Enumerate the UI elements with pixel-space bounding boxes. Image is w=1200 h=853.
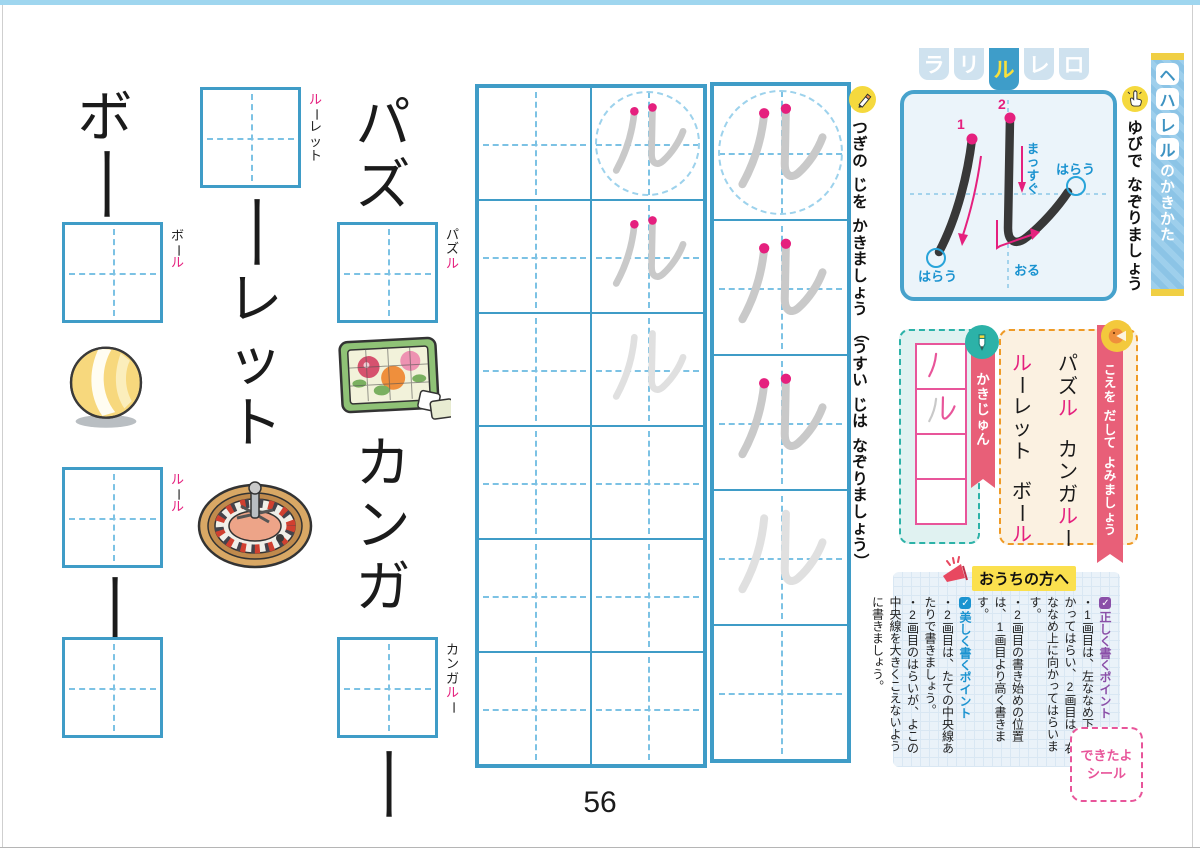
write-instruction: つぎのじをかきましょう（うすいじはなぞりましょう）: [851, 120, 869, 568]
char-ー: ー: [351, 738, 423, 831]
page-bottom-edge: [0, 847, 1200, 848]
checkbox-icon: ✓: [959, 597, 971, 609]
char-ン: ン: [1056, 460, 1080, 483]
char-ょ: ょ: [851, 521, 869, 538]
char-を: を: [1103, 390, 1117, 404]
char-ん: ん: [976, 432, 990, 447]
char-き: き: [851, 235, 869, 252]
char-し: し: [1103, 497, 1117, 511]
read-aloud-words-col-2: ルーレットボール: [1010, 352, 1034, 545]
practice-cell[interactable]: [591, 200, 704, 313]
char-ぞ: ぞ: [1126, 194, 1144, 211]
char-か: か: [1160, 180, 1176, 196]
char-ズ: ズ: [352, 154, 414, 216]
practice-cell[interactable]: [591, 87, 704, 200]
stroke-2-number: 2: [998, 96, 1006, 112]
stroke-order-cell-3: [915, 433, 967, 480]
char-ょ: ょ: [851, 285, 869, 302]
char-り: り: [1126, 211, 1144, 228]
char-ぐ: ぐ: [1026, 183, 1040, 197]
char-ー: ー: [309, 107, 322, 122]
char-ル: ル: [170, 257, 185, 272]
word-rule-label: ルール: [170, 473, 185, 515]
voice-icon: [1101, 320, 1133, 352]
char-ン: ン: [445, 658, 460, 673]
sticker-box[interactable]: できたよ シール: [1070, 727, 1143, 802]
trace-glyph-ru: [723, 500, 837, 614]
char-（: （: [853, 324, 867, 342]
point-heading: ✓美しく書くポイント: [956, 596, 974, 762]
tab-ラ[interactable]: ラ: [919, 48, 949, 80]
label-oru: おる: [1014, 260, 1040, 279]
char-ー: ー: [446, 700, 459, 715]
char-レ: レ: [308, 121, 323, 136]
word-roulette-display: ーレット: [224, 196, 286, 454]
point-item: ・2画目のはらいが、よこの中央線を大きくこえないように書きましょう。: [868, 596, 921, 762]
worksheet-page: ボー ボール ルール ー ルーレット ーレット パズ パズル: [0, 0, 1200, 853]
char-カ: カ: [1056, 438, 1080, 461]
char-ー: ー: [171, 243, 184, 258]
char-な: な: [1126, 178, 1144, 195]
page-left-edge: [2, 5, 3, 848]
char-き: き: [1160, 196, 1176, 212]
char-し: し: [851, 268, 869, 285]
char-ー: ー: [1012, 501, 1032, 525]
char-ル: ル: [170, 501, 185, 516]
char-り: り: [851, 471, 869, 488]
flower-puzzle-image: [337, 334, 451, 422]
stroke-diagram-box: 1 2 まっすぐ はらう はらう おる: [900, 90, 1117, 301]
char-ょ: ょ: [1126, 260, 1144, 277]
char-か: か: [976, 372, 990, 387]
tab-ロ[interactable]: ロ: [1059, 48, 1089, 80]
char-じ: じ: [851, 397, 869, 414]
char-う: う: [851, 301, 869, 318]
char-ル: ル: [445, 687, 460, 702]
practice-grid-two-col: [475, 84, 707, 768]
char-ル: ル: [1010, 352, 1034, 375]
finger-icon: [1122, 86, 1148, 112]
char-ガ: ガ: [1056, 483, 1080, 506]
practice-cell[interactable]: [713, 220, 848, 355]
char-ッ: ッ: [308, 135, 323, 150]
char-レ: レ: [1010, 395, 1034, 418]
read-aloud-label: こえをだしてよみましょう: [1103, 363, 1117, 537]
char-だ: だ: [1103, 410, 1117, 424]
practice-cell[interactable]: [591, 426, 704, 539]
tab-リ[interactable]: リ: [954, 48, 984, 80]
trace-glyph-ru: [723, 95, 837, 209]
trace-glyph-ru: [600, 209, 695, 304]
banner-bottom-cap: [1151, 289, 1184, 296]
char-し: し: [1126, 244, 1144, 261]
word-kangaroo-display-tail: ー: [356, 748, 418, 820]
char-を: を: [851, 194, 869, 211]
parents-note-title: おうちの方へ: [972, 566, 1076, 591]
trace-glyph-ru: [600, 322, 695, 417]
chapter-side-tab[interactable]: ヘハレル のかきかた: [1151, 53, 1184, 296]
char-ま: ま: [851, 252, 869, 269]
char-う: う: [1126, 277, 1144, 294]
stroke-1-number: 1: [957, 116, 965, 132]
char-ま: ま: [1026, 142, 1040, 156]
read-aloud-ribbon: こえをだしてよみましょう: [1097, 325, 1123, 563]
char-ル: ル: [1056, 505, 1080, 528]
banner-letter-レ: レ: [1156, 113, 1179, 135]
practice-cell[interactable]: [713, 85, 848, 220]
char-え: え: [1103, 377, 1117, 391]
trace-glyph-ru: [600, 96, 695, 191]
stroke-order-cell-2: [915, 388, 967, 435]
char-カ: カ: [352, 432, 414, 494]
char-パ: パ: [445, 228, 460, 243]
char-じ: じ: [976, 402, 990, 417]
tab-ル[interactable]: ル: [989, 48, 1019, 90]
word-rule-write-box-2[interactable]: [62, 637, 163, 738]
char-び: び: [1126, 137, 1144, 154]
char-た: た: [1160, 228, 1176, 244]
finger-instruction: ゆびでなぞりましょう: [1126, 120, 1144, 293]
char-ま: ま: [851, 488, 869, 505]
stroke-order-cell-1: [915, 343, 967, 390]
practice-cell[interactable]: [591, 313, 704, 426]
char-）: ）: [853, 552, 867, 570]
trace-glyph-ru: [723, 230, 837, 344]
char-ル: ル: [445, 257, 460, 272]
page-number: 56: [560, 786, 640, 820]
point-item: ・2画目は、たての中央線あたりで書きましょう。: [921, 596, 956, 762]
reading-word: ボール: [1010, 480, 1034, 545]
char-す: す: [851, 356, 869, 373]
megaphone-icon: [939, 556, 971, 586]
char-で: で: [1126, 153, 1144, 170]
char-パ: パ: [352, 92, 414, 154]
checkbox-icon: ✓: [1099, 597, 1111, 609]
char-カ: カ: [445, 643, 460, 658]
word-puzzle-label: パズル: [445, 228, 460, 272]
practice-cell[interactable]: [478, 539, 591, 652]
practice-cell[interactable]: [591, 652, 704, 765]
char-き: き: [976, 387, 990, 402]
char-ル: ル: [170, 473, 185, 488]
char-ー: ー: [1058, 526, 1078, 550]
banner-suffix: のかきかた: [1160, 164, 1176, 244]
word-roulette-write-box[interactable]: [200, 87, 301, 188]
pencil-icon: [849, 86, 876, 113]
char-ボ: ボ: [170, 229, 185, 244]
word-kangaroo-write-box[interactable]: [337, 637, 438, 738]
char-ッ: ッ: [1010, 417, 1034, 440]
char-ボ: ボ: [1010, 480, 1034, 503]
char-ン: ン: [352, 494, 414, 556]
banner-top-cap: [1151, 53, 1184, 60]
char-か: か: [851, 219, 869, 236]
char-ズ: ズ: [1056, 375, 1080, 398]
tab-レ[interactable]: レ: [1024, 48, 1054, 80]
char-よ: よ: [1103, 456, 1117, 470]
char-ー: ー: [1012, 373, 1032, 397]
trace-glyph-ru: [723, 365, 837, 479]
char-ー: ー: [69, 138, 141, 231]
banner-letter-ハ: ハ: [1156, 88, 1179, 110]
char-て: て: [1103, 437, 1117, 451]
label-massugu: まっすぐ: [1026, 142, 1040, 196]
char-っ: っ: [1026, 156, 1040, 170]
banner-letter-ル: ル: [1156, 138, 1179, 160]
page-right-edge: [1192, 5, 1193, 848]
sticker-line2: シール: [1087, 765, 1126, 783]
word-ball-label: ボール: [170, 229, 185, 271]
char-ゅ: ゅ: [976, 417, 990, 432]
practice-cell[interactable]: [478, 200, 591, 313]
banner-letter-ヘ: ヘ: [1156, 63, 1179, 85]
char-パ: パ: [1056, 352, 1080, 375]
char-ト: ト: [308, 150, 323, 165]
char-ズ: ズ: [445, 243, 460, 258]
reading-word: パズル: [1056, 352, 1080, 420]
katakana-row-tabs: ラリルレロ: [919, 48, 1089, 90]
char-ぎ: ぎ: [851, 137, 869, 154]
char-ま: ま: [1126, 227, 1144, 244]
stroke-order-ribbon: かきじゅん: [971, 338, 995, 488]
word-ball-display: ボー: [74, 86, 136, 220]
practice-cell[interactable]: [713, 490, 848, 625]
word-puzzle-display: パズ: [352, 92, 414, 216]
char-の: の: [851, 153, 869, 170]
char-ま: ま: [1103, 483, 1117, 497]
char-ル: ル: [1056, 397, 1080, 420]
reading-word: ルーレット: [1010, 352, 1034, 462]
char-ガ: ガ: [445, 672, 460, 687]
word-rule-display: ー: [82, 574, 144, 646]
char-か: か: [1160, 212, 1176, 228]
word-rule-write-box-1[interactable]: [62, 467, 163, 568]
word-puzzle-write-box[interactable]: [337, 222, 438, 323]
practice-cell[interactable]: [478, 313, 591, 426]
char-ょ: ょ: [1103, 510, 1117, 524]
char-つ: つ: [851, 120, 869, 137]
stroke-order-strip: [915, 345, 967, 525]
word-kangaroo-label: カンガルー: [445, 643, 460, 714]
char-し: し: [851, 504, 869, 521]
roulette-wheel-image: [194, 476, 316, 572]
char-は: は: [851, 414, 869, 431]
word-ball-write-box[interactable]: [62, 222, 163, 323]
practice-cell[interactable]: [478, 426, 591, 539]
stroke-order-pencil-icon: [965, 325, 999, 359]
label-harau-2: はらう: [1056, 159, 1095, 178]
char-ト: ト: [1010, 440, 1034, 463]
char-し: し: [1103, 423, 1117, 437]
char-じ: じ: [851, 178, 869, 195]
reading-word: カンガルー: [1056, 438, 1080, 548]
stroke-order-label: かきじゅん: [976, 372, 990, 447]
practice-cell[interactable]: [591, 539, 704, 652]
stroke-order-cell-4: [915, 478, 967, 525]
practice-cell[interactable]: [478, 87, 591, 200]
char-ー: ー: [171, 487, 184, 502]
char-ト: ト: [224, 392, 286, 454]
read-aloud-words-col-1: パズルカンガルー: [1056, 352, 1080, 548]
char-ガ: ガ: [352, 556, 414, 618]
char-ル: ル: [1010, 523, 1034, 546]
char-ル: ル: [308, 93, 323, 108]
char-の: の: [1160, 164, 1176, 180]
sticker-line1: できたよ: [1080, 747, 1132, 765]
practice-grid-one-col: [710, 82, 851, 763]
char-う: う: [1103, 524, 1117, 538]
char-ッ: ッ: [224, 330, 286, 392]
char-な: な: [851, 438, 869, 455]
char-ゆ: ゆ: [1126, 120, 1144, 137]
char-す: す: [1026, 169, 1040, 183]
char-ー: ー: [219, 186, 291, 279]
char-こ: こ: [1103, 363, 1117, 377]
word-roulette-label: ルーレット: [308, 93, 323, 164]
char-ぞ: ぞ: [851, 455, 869, 472]
practice-cell[interactable]: [713, 355, 848, 490]
char-い: い: [851, 373, 869, 390]
practice-cell[interactable]: [713, 625, 848, 760]
char-み: み: [1103, 470, 1117, 484]
beach-ball-image: [60, 340, 152, 430]
page-top-edge: [0, 0, 1200, 5]
practice-cell[interactable]: [478, 652, 591, 765]
word-kangaroo-display: カンガ: [352, 432, 414, 618]
label-harau-1: はらう: [918, 266, 957, 285]
point-item: ・2画目の書き始めの位置は、1画目より高く書きます。: [973, 596, 1026, 762]
